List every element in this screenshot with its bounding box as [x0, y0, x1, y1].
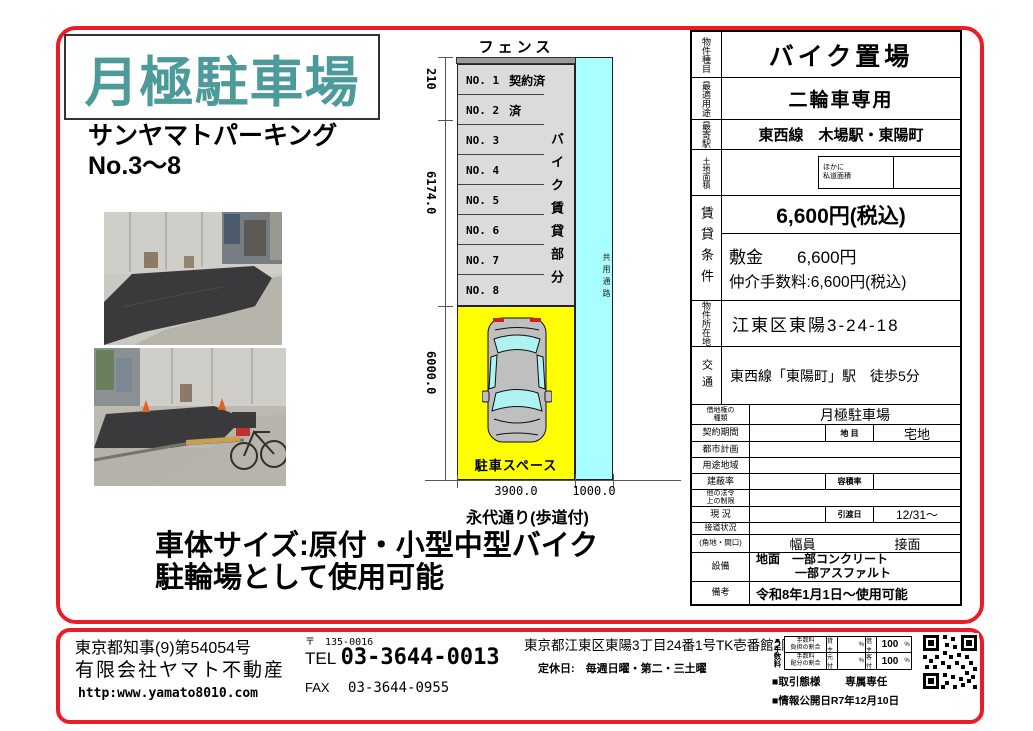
- space-no: NO. 6: [466, 224, 499, 237]
- zoning-label: 用途地域: [692, 458, 750, 473]
- lease-type-label1: 借地権の: [707, 407, 735, 415]
- page-title: 月極駐車場: [85, 38, 360, 117]
- equipment-line1: 地面 一部コンクリート: [756, 553, 888, 567]
- space-no: NO. 7: [466, 254, 499, 267]
- dim-3900: 3900.0: [476, 484, 556, 498]
- commission: 仲介手数料:6,600円(税込): [729, 270, 960, 292]
- deposit: 敷金 6,600円: [729, 243, 960, 268]
- fee-value: 100: [877, 653, 903, 669]
- body-size-notes: 車体サイズ:原付・小型中型バイク 駐輪場として使用可能: [155, 530, 598, 595]
- lease-type-value: 月極駐車場: [820, 405, 890, 425]
- access-value: 東西線「東陽町」駅 徒歩5分: [722, 366, 920, 386]
- row-land-area: 土地面積 ほかに 私道面積: [692, 150, 960, 196]
- qr-code: [921, 633, 979, 696]
- tel-number: 03-3644-0013: [341, 645, 500, 670]
- handover-label: 引渡日: [826, 507, 874, 522]
- site-diagram: フェンス NO. 1 契約済 NO. 2 済 NO. 3 NO. 4 NO. 5…: [423, 36, 693, 541]
- dim-6000: 6000.0: [424, 351, 438, 394]
- fee-pct: %: [903, 637, 911, 652]
- fee-party1: 貸主: [827, 637, 838, 652]
- road-label: 永代通り(歩道付): [435, 504, 620, 528]
- fee-table: 手数料 負担の割合 貸主 % 借主 100 % 手数料 配分の割合 元付 % 客…: [784, 636, 912, 670]
- space-row-2: NO. 2 済: [458, 95, 574, 125]
- remarks-value: 令和8年1月1日〜使用可能: [750, 584, 908, 603]
- parking-name-line1: サンヤマトパーキング: [88, 122, 337, 152]
- land-area-label: 土地面積: [701, 157, 712, 189]
- dim-1000: 1000.0: [564, 484, 624, 498]
- fee-blank-pct: %: [838, 653, 866, 669]
- fee-party1: 元付: [827, 653, 838, 669]
- space-no: NO. 4: [466, 164, 499, 177]
- fee-party2: 借主: [866, 637, 877, 652]
- other-law-label1: 他の法令: [707, 490, 735, 498]
- fee-label: 手数料: [796, 654, 814, 661]
- photo-parking-bottom: [94, 348, 286, 486]
- row-corner: (角地・間口) 幅員 接面: [692, 535, 960, 553]
- holiday-info: 定休日: 毎週日曜・第二・三土曜: [538, 660, 707, 676]
- flyer-page: 月極駐車場 サンヤマトパーキング No.3〜8: [0, 0, 1033, 731]
- fax-label: FAX: [305, 680, 330, 695]
- fee-blank-pct: %: [838, 637, 866, 652]
- photo-parking-top: [104, 212, 282, 345]
- fee-party2: 客付: [866, 653, 877, 669]
- row-lease-type: 借地権の 種類 月極駐車場: [692, 405, 960, 425]
- row-equipment: 設備 地面 一部コンクリート 一部アスファルト: [692, 553, 960, 582]
- row-other-law: 他の法令 上の制限: [692, 490, 960, 507]
- land-area-note1: ほかに: [823, 164, 893, 172]
- land-area-note2: 私道面積: [823, 173, 893, 181]
- car-parking-area: 駐車スペース: [457, 306, 575, 480]
- space-row-1: NO. 1 契約済: [458, 65, 574, 95]
- city-plan-label: 都市計画: [692, 442, 750, 457]
- property-type-label: 物件種目: [700, 37, 713, 73]
- access-label: 交通: [699, 359, 715, 393]
- contact-header: 接面: [855, 534, 960, 553]
- equipment-label: 設備: [692, 553, 750, 581]
- tel-label: TEL: [305, 649, 336, 668]
- transaction-label: ■取引態様: [772, 676, 820, 688]
- fee-label: 手数料: [796, 638, 814, 645]
- land-cat-value: 宅地: [874, 425, 960, 441]
- parking-space-label: 駐車スペース: [458, 455, 574, 474]
- fax-line: FAX 03-3644-0955: [305, 679, 449, 697]
- bike-rental-vertical-label: バイク賃貸部分: [547, 132, 566, 293]
- best-use-value: 二輪車専用: [788, 85, 893, 112]
- tel-line: TEL 03-3644-0013: [305, 645, 500, 670]
- property-type-value: バイク置場: [769, 37, 914, 73]
- company-url: http:www.yamato8010.com: [78, 686, 258, 701]
- space-no: NO. 8: [466, 284, 499, 297]
- rent-price: 6,600円(税込): [722, 196, 960, 234]
- width-header: 幅員: [750, 534, 855, 553]
- shared-corridor-label: 共用通路: [576, 253, 612, 301]
- space-no: NO. 5: [466, 194, 499, 207]
- bcr-label: 建蔽率: [692, 474, 750, 489]
- title-box: 月極駐車場: [64, 34, 380, 120]
- station-value: 東西線 木場駅・東陽町: [758, 124, 923, 145]
- company-name: 有限会社ヤマト不動産: [75, 655, 285, 682]
- dim-210: 210: [424, 68, 438, 90]
- dim-tick: [438, 306, 453, 307]
- remarks-label: 備考: [692, 582, 750, 604]
- space-status: 済: [509, 102, 521, 119]
- fee-section-label: ■手数料: [772, 636, 783, 672]
- row-location: 物件所在地 江東区東陽3-24-18: [692, 301, 960, 347]
- road-contact-label: 接道状況: [692, 523, 750, 534]
- car-top-view: [482, 315, 552, 450]
- row-current-state: 現 況 引渡日 12/31〜: [692, 507, 960, 523]
- row-station: 最寄駅 東西線 木場駅・東陽町: [692, 120, 960, 150]
- ground-line: [425, 480, 681, 481]
- space-status: 契約済: [509, 72, 545, 89]
- fee-row-split: 手数料 配分の割合 元付 % 客付 100 %: [785, 653, 911, 669]
- fax-number: 03-3644-0955: [348, 680, 449, 696]
- spec-table: 物件種目 バイク置場 最適用途 二輪車専用 最寄駅 東西線 木場駅・東陽町 土地…: [690, 30, 962, 606]
- shared-corridor: 共用通路: [575, 57, 613, 480]
- row-access: 交通 東西線「東陽町」駅 徒歩5分: [692, 347, 960, 405]
- equipment-line2: 一部アスファルト: [756, 567, 891, 581]
- location-label: 物件所在地: [700, 301, 713, 346]
- station-label: 最寄駅: [700, 121, 713, 148]
- row-bcr: 建蔽率 容積率: [692, 474, 960, 490]
- fee-label2: 配分の割合: [790, 661, 820, 668]
- parking-name-line2: No.3〜8: [88, 152, 337, 182]
- fee-row-burden: 手数料 負担の割合 貸主 % 借主 100 %: [785, 637, 911, 653]
- fence-bar: [456, 57, 580, 64]
- fee-label2: 負担の割合: [790, 645, 820, 652]
- row-property-type: 物件種目 バイク置場: [692, 32, 960, 78]
- row-remarks: 備考 令和8年1月1日〜使用可能: [692, 582, 960, 604]
- parking-name: サンヤマトパーキング No.3〜8: [88, 122, 337, 181]
- fee-pct: %: [903, 653, 911, 669]
- transaction-value: 専属専任: [845, 676, 887, 688]
- other-law-label2: 上の制限: [707, 498, 735, 506]
- dim-tick: [438, 57, 453, 58]
- publish-date: ■情報公開日R7年12月10日: [772, 693, 899, 708]
- location-value: 江東区東陽3-24-18: [722, 311, 900, 336]
- row-zoning: 用途地域: [692, 458, 960, 474]
- best-use-label: 最適用途: [700, 81, 713, 117]
- dim-tick: [438, 120, 453, 121]
- fence-label: フェンス: [454, 36, 579, 57]
- row-contract: 契約期間 地 目 宅地: [692, 425, 960, 442]
- fee-value: 100: [877, 637, 903, 652]
- row-city-plan: 都市計画: [692, 442, 960, 458]
- current-label: 現 況: [692, 507, 750, 522]
- handover-value: 12/31〜: [874, 507, 960, 522]
- office-address: 東京都江東区東陽3丁目24番1号TK壱番館2階: [524, 634, 795, 654]
- contract-label: 契約期間: [692, 425, 750, 441]
- space-no: NO. 2: [466, 104, 499, 117]
- far-label: 容積率: [826, 474, 874, 489]
- rent-label: 賃貸条件: [697, 206, 716, 290]
- note-line2: 駐輪場として使用可能: [155, 562, 598, 594]
- row-best-use: 最適用途 二輪車専用: [692, 78, 960, 120]
- land-area-subtable: ほかに 私道面積: [818, 156, 961, 189]
- transaction-type: ■取引態様 専属専任: [772, 674, 887, 689]
- space-no: NO. 1: [466, 74, 499, 87]
- row-rent-conditions: 賃貸条件 6,600円(税込) 敷金 6,600円 仲介手数料:6,600円(税…: [692, 196, 960, 301]
- note-line1: 車体サイズ:原付・小型中型バイク: [155, 530, 598, 562]
- lease-type-label2: 種類: [714, 415, 728, 423]
- dim-6174: 6174.0: [424, 171, 438, 214]
- space-no: NO. 3: [466, 134, 499, 147]
- dim-tick: [457, 474, 458, 488]
- corner-label: (角地・間口): [692, 535, 750, 552]
- land-cat-label: 地 目: [826, 425, 874, 441]
